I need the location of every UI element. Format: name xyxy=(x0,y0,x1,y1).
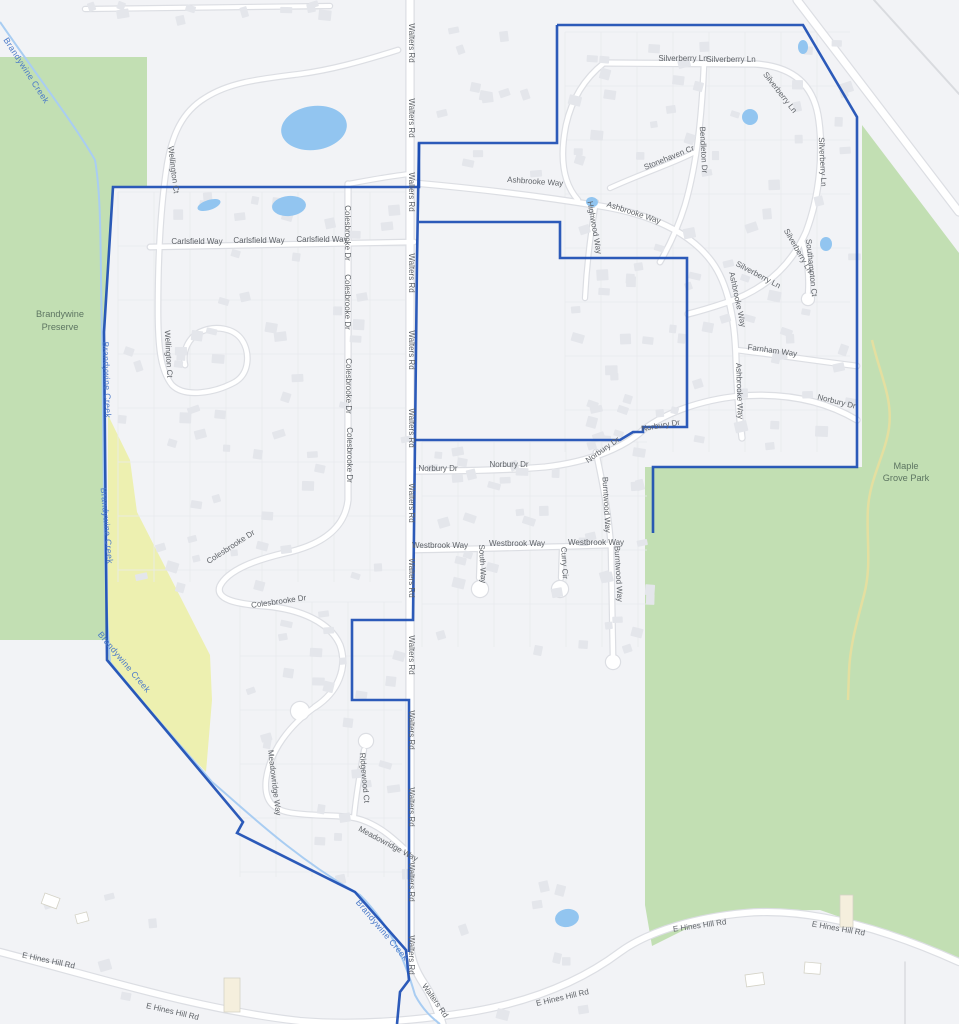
house xyxy=(792,80,803,89)
building xyxy=(804,962,821,974)
house xyxy=(848,253,861,260)
house xyxy=(179,412,191,423)
house xyxy=(655,409,664,418)
culdesac xyxy=(359,734,373,748)
house xyxy=(602,571,613,583)
house xyxy=(768,179,780,190)
house xyxy=(292,252,301,261)
house xyxy=(261,511,273,520)
house xyxy=(324,217,336,229)
house xyxy=(795,135,803,144)
house xyxy=(832,40,842,47)
street-label: Walters Rd xyxy=(407,253,416,292)
house xyxy=(666,105,677,114)
house xyxy=(434,451,442,459)
pond xyxy=(742,109,758,125)
house xyxy=(339,812,351,823)
street-label: Walters Rd xyxy=(407,862,416,901)
house xyxy=(211,354,224,364)
house xyxy=(590,130,604,141)
culdesac xyxy=(606,655,620,669)
street-label: Walters Rd xyxy=(407,710,416,749)
house xyxy=(280,7,292,14)
house xyxy=(173,209,183,220)
house xyxy=(191,330,204,342)
house xyxy=(117,415,126,424)
house xyxy=(562,957,571,965)
house xyxy=(605,365,618,375)
brandywine-preserve-label: Preserve xyxy=(42,322,79,332)
house xyxy=(148,918,157,928)
street-label: Norbury Dr xyxy=(418,464,457,473)
house xyxy=(318,9,332,21)
house xyxy=(350,335,362,343)
house xyxy=(310,648,323,658)
house xyxy=(646,594,655,605)
street-label: Colesbrooke Dr xyxy=(343,205,352,261)
street-label: Silverberry Ln xyxy=(706,55,755,64)
house xyxy=(263,738,272,749)
house xyxy=(620,334,631,345)
house xyxy=(699,42,709,52)
brandywine-preserve-label: Brandywine xyxy=(36,309,84,319)
house xyxy=(669,324,677,333)
building xyxy=(224,978,240,1012)
house xyxy=(274,331,288,342)
house xyxy=(190,500,202,509)
house xyxy=(352,319,364,330)
house xyxy=(388,204,401,216)
house xyxy=(385,676,396,687)
street-label: Silverberry Ln xyxy=(658,54,707,63)
house xyxy=(539,506,549,516)
street-label: Westbrook Way xyxy=(489,539,545,548)
house xyxy=(283,668,295,679)
house xyxy=(452,474,464,483)
street-label: Norbury Dr xyxy=(489,460,528,469)
house xyxy=(307,451,318,458)
map-viewport[interactable]: Walters RdWalters RdWalters RdWalters Rd… xyxy=(0,0,959,1024)
street-label: Walters Rd xyxy=(407,172,416,211)
street-label: Walters Rd xyxy=(407,483,416,522)
house xyxy=(612,616,623,623)
house xyxy=(174,360,184,368)
house xyxy=(499,31,509,42)
maple-grove-park-label: Maple xyxy=(893,461,918,471)
house xyxy=(786,334,795,344)
house xyxy=(642,336,654,345)
house xyxy=(598,288,610,296)
house xyxy=(314,837,325,846)
house xyxy=(251,196,260,205)
house xyxy=(626,276,636,287)
house xyxy=(317,804,326,815)
street-label: Colesbrooke Dr xyxy=(343,274,352,330)
house xyxy=(312,677,325,685)
house xyxy=(551,587,563,598)
house xyxy=(648,44,660,54)
pond xyxy=(820,237,832,251)
house xyxy=(605,621,613,629)
house xyxy=(834,117,842,127)
house xyxy=(765,442,775,450)
house xyxy=(470,82,482,93)
house xyxy=(280,545,292,554)
house xyxy=(323,627,334,634)
house xyxy=(223,445,231,452)
street-label: Curry Cir xyxy=(559,547,570,580)
house xyxy=(677,333,686,344)
maple-grove-park-label: Grove Park xyxy=(883,473,930,483)
house xyxy=(214,410,226,420)
house xyxy=(578,640,588,649)
house xyxy=(603,89,616,100)
house xyxy=(839,147,851,155)
street-label: Walters Rd xyxy=(407,98,416,137)
house xyxy=(636,152,644,160)
street-label: Colesbrooke Dr xyxy=(345,427,354,483)
pond xyxy=(798,40,808,54)
map-canvas[interactable]: Walters RdWalters RdWalters RdWalters Rd… xyxy=(0,0,959,1024)
house xyxy=(650,121,658,128)
house xyxy=(634,262,644,271)
house xyxy=(586,55,598,63)
house xyxy=(253,449,263,460)
house xyxy=(302,481,314,491)
street-label: Westbrook Way xyxy=(568,538,624,547)
street-label: Colesbrooke Dr xyxy=(344,358,353,414)
building xyxy=(840,895,853,927)
house xyxy=(515,509,524,517)
building xyxy=(745,972,764,986)
house xyxy=(596,269,609,281)
house xyxy=(532,900,543,910)
house xyxy=(374,563,383,571)
house xyxy=(762,208,772,220)
street-label: Walters Rd xyxy=(407,635,416,674)
house xyxy=(334,833,342,841)
street-label: Carlsfield Way xyxy=(233,236,284,245)
street-label: Walters Rd xyxy=(407,408,416,447)
house xyxy=(802,391,813,399)
house xyxy=(574,148,583,155)
house xyxy=(577,1005,589,1015)
house xyxy=(234,212,246,221)
house xyxy=(342,717,353,728)
street-label: Walters Rd xyxy=(407,330,416,369)
house xyxy=(770,421,779,430)
house xyxy=(815,426,828,437)
house xyxy=(473,150,483,157)
house xyxy=(571,306,581,314)
street-label: Walters Rd xyxy=(407,558,416,597)
street-label: Carlsfield Way xyxy=(171,237,222,246)
house xyxy=(702,321,715,333)
house xyxy=(645,584,655,595)
house xyxy=(381,221,394,231)
street-label: Carlsfield Way xyxy=(296,235,347,244)
house xyxy=(672,75,685,85)
culdesac xyxy=(291,702,309,720)
house xyxy=(500,477,511,484)
street-label: Walters Rd xyxy=(407,787,416,826)
house xyxy=(339,657,347,665)
house xyxy=(599,56,609,64)
house xyxy=(175,347,187,355)
street-label: Westbrook Way xyxy=(412,541,468,550)
house xyxy=(291,374,303,382)
house xyxy=(264,322,278,334)
house xyxy=(552,469,560,478)
house xyxy=(333,306,342,315)
house xyxy=(712,151,719,160)
street-label: Walters Rd xyxy=(407,23,416,62)
